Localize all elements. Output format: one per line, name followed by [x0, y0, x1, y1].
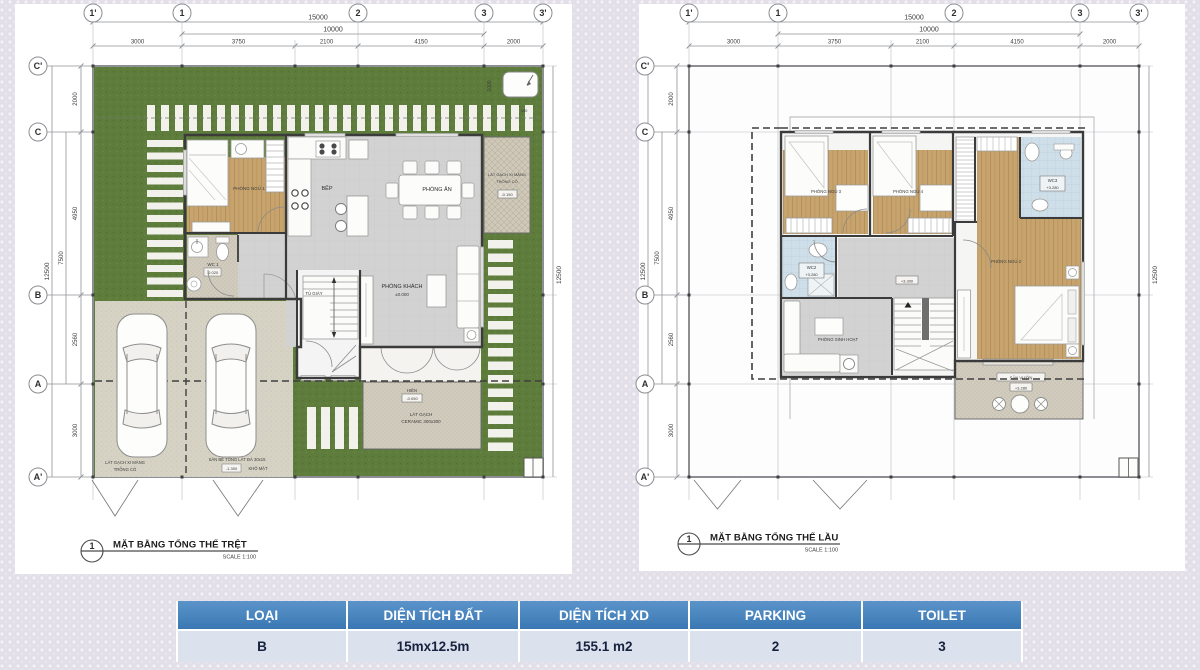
svg-text:1000: 1000: [487, 80, 493, 91]
svg-text:4950: 4950: [669, 206, 675, 220]
svg-text:MẶT BẰNG TỔNG THỂ TRỆT: MẶT BẰNG TỔNG THỂ TRỆT: [113, 539, 247, 551]
svg-text:+3.300: +3.300: [901, 279, 914, 284]
svg-text:2000: 2000: [669, 92, 675, 106]
svg-text:WC 1: WC 1: [207, 262, 219, 267]
svg-text:12500: 12500: [1152, 266, 1159, 284]
svg-text:3': 3': [539, 8, 546, 18]
svg-text:3000: 3000: [669, 423, 675, 437]
svg-text:3000: 3000: [727, 40, 741, 46]
svg-text:MẶT BẰNG TỔNG THỂ LẦU: MẶT BẰNG TỔNG THỂ LẦU: [710, 532, 838, 544]
svg-text:PHÒNG NGỦ 3: PHÒNG NGỦ 3: [811, 189, 842, 194]
svg-text:A': A': [34, 472, 43, 482]
svg-text:±0.000: ±0.000: [395, 292, 409, 297]
svg-text:A': A': [641, 472, 650, 482]
svg-text:2100: 2100: [916, 40, 930, 46]
svg-text:SCALE 1:100: SCALE 1:100: [805, 548, 838, 554]
svg-text:TRỒNG CỎ: TRỒNG CỎ: [114, 467, 137, 472]
svg-text:10000: 10000: [323, 27, 343, 34]
svg-text:LÁT GẠCH: LÁT GẠCH: [410, 411, 432, 417]
svg-text:3750: 3750: [232, 40, 246, 46]
svg-text:3: 3: [481, 8, 486, 18]
svg-text:1: 1: [89, 541, 94, 551]
svg-text:+3.280: +3.280: [805, 272, 818, 277]
svg-text:4950: 4950: [73, 206, 79, 220]
svg-text:1': 1': [89, 8, 96, 18]
svg-text:SCALE 1:100: SCALE 1:100: [223, 555, 256, 561]
svg-text:4150: 4150: [414, 40, 428, 46]
svg-text:7500: 7500: [655, 251, 661, 265]
svg-text:C': C': [34, 61, 43, 71]
svg-text:SÀN BÊ TÔNG LÁT ĐÁ 30x15: SÀN BÊ TÔNG LÁT ĐÁ 30x15: [209, 457, 267, 462]
svg-text:KHÔ MẶT: KHÔ MẶT: [248, 466, 268, 471]
svg-text:C: C: [35, 127, 42, 137]
svg-text:1: 1: [179, 8, 184, 18]
svg-text:PHÒNG SINH HOẠT: PHÒNG SINH HOẠT: [818, 337, 859, 342]
svg-text:1: 1: [775, 8, 780, 18]
svg-text:2000: 2000: [507, 40, 521, 46]
svg-text:LÁT GẠCH XI MĂNG: LÁT GẠCH XI MĂNG: [105, 460, 145, 465]
svg-text:2100: 2100: [320, 40, 334, 46]
svg-text:PHÒNG ĂN: PHÒNG ĂN: [422, 186, 451, 193]
svg-text:12500: 12500: [640, 262, 647, 280]
svg-text:TỦ GIÀY: TỦ GIÀY: [305, 291, 322, 296]
svg-text:B: B: [642, 290, 649, 300]
svg-text:PHÒNG NGỦ 2: PHÒNG NGỦ 2: [991, 259, 1022, 264]
svg-text:3000: 3000: [131, 40, 145, 46]
svg-text:WC3: WC3: [1048, 178, 1058, 183]
svg-text:-0.050: -0.050: [406, 396, 418, 401]
svg-text:C': C': [641, 61, 650, 71]
svg-text:PHÒNG NGỦ 1: PHÒNG NGỦ 1: [233, 185, 265, 191]
svg-text:1': 1': [685, 8, 692, 18]
svg-text:A: A: [35, 379, 42, 389]
svg-text:PHÒNG NGỦ 4: PHÒNG NGỦ 4: [893, 189, 924, 194]
svg-text:1: 1: [686, 534, 691, 544]
svg-text:2: 2: [355, 8, 360, 18]
svg-text:WC2: WC2: [807, 265, 817, 270]
svg-text:450: 450: [521, 108, 528, 113]
svg-text:2: 2: [951, 8, 956, 18]
svg-text:4150: 4150: [1010, 40, 1024, 46]
svg-text:PHÒNG KHÁCH: PHÒNG KHÁCH: [382, 283, 423, 290]
svg-text:3': 3': [1135, 8, 1142, 18]
svg-text:3000: 3000: [73, 423, 79, 437]
svg-text:7500: 7500: [59, 251, 65, 265]
svg-text:15000: 15000: [904, 15, 924, 22]
svg-text:3: 3: [1077, 8, 1082, 18]
svg-text:3750: 3750: [828, 40, 842, 46]
svg-text:CERAMIC 300x300: CERAMIC 300x300: [401, 419, 441, 424]
svg-text:C: C: [642, 127, 649, 137]
svg-text:2560: 2560: [73, 332, 79, 346]
svg-text:HIÊN: HIÊN: [407, 388, 417, 393]
svg-text:+3.280: +3.280: [1046, 185, 1059, 190]
svg-text:B: B: [35, 290, 42, 300]
svg-text:10000: 10000: [919, 27, 939, 34]
svg-text:2000: 2000: [73, 92, 79, 106]
svg-text:15000: 15000: [308, 15, 328, 22]
svg-text:2000: 2000: [1103, 40, 1117, 46]
svg-text:A: A: [642, 379, 649, 389]
svg-text:12500: 12500: [556, 266, 563, 284]
svg-text:2560: 2560: [669, 332, 675, 346]
svg-text:12500: 12500: [44, 262, 51, 280]
svg-text:-1.300: -1.300: [226, 466, 238, 471]
svg-text:-0.150: -0.150: [501, 192, 513, 197]
svg-text:LÁT GẠCH XI MĂNG: LÁT GẠCH XI MĂNG: [488, 172, 526, 177]
svg-text:TRỒNG CỎ: TRỒNG CỎ: [496, 179, 518, 184]
svg-text:+3.280: +3.280: [1015, 385, 1028, 390]
svg-text:BẾP: BẾP: [321, 185, 332, 192]
